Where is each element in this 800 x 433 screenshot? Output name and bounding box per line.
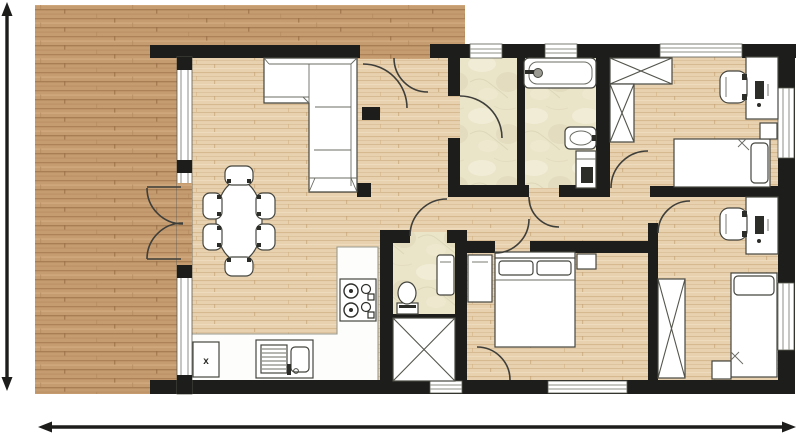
toilet bbox=[397, 282, 418, 314]
washing-machine bbox=[576, 151, 596, 188]
dining-table bbox=[216, 181, 262, 261]
west-window-wall bbox=[177, 57, 192, 394]
floor-plan-drawing: x bbox=[0, 0, 800, 433]
window bbox=[778, 283, 794, 350]
stove bbox=[340, 279, 376, 321]
window bbox=[430, 381, 462, 393]
dresser bbox=[468, 255, 492, 302]
nightstand bbox=[577, 254, 596, 269]
kitchen-sink bbox=[256, 340, 313, 378]
window bbox=[778, 88, 794, 158]
storage-room-floor bbox=[460, 57, 517, 188]
desk-bottom-right bbox=[746, 197, 778, 254]
dimension-line-vertical bbox=[2, 2, 13, 391]
window bbox=[470, 44, 502, 58]
desk-chair bbox=[720, 71, 747, 103]
bathtub bbox=[524, 58, 596, 88]
dimension-line-horizontal bbox=[38, 422, 796, 433]
window bbox=[548, 381, 627, 393]
dishwasher: x bbox=[193, 342, 219, 377]
wc-washbasin bbox=[437, 255, 454, 295]
wardrobe-x bbox=[658, 279, 685, 378]
washbasin bbox=[565, 127, 596, 149]
dishwasher-label: x bbox=[203, 356, 209, 367]
wardrobe-x bbox=[393, 318, 455, 381]
window bbox=[660, 44, 742, 57]
window bbox=[545, 44, 577, 58]
desk-top-right bbox=[746, 57, 778, 119]
double-bed bbox=[495, 252, 575, 347]
desk-chair bbox=[720, 208, 747, 240]
terrace-door-threshold bbox=[355, 45, 430, 59]
floor-plan-canvas: x bbox=[0, 0, 800, 433]
